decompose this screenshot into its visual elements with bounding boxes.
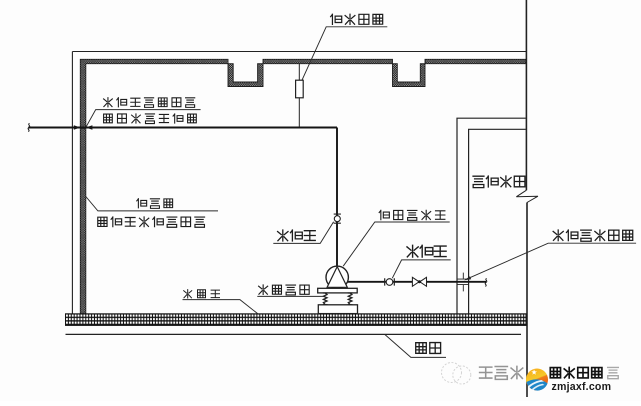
svg-text:zmjaxf.com: zmjaxf.com [552, 381, 612, 393]
